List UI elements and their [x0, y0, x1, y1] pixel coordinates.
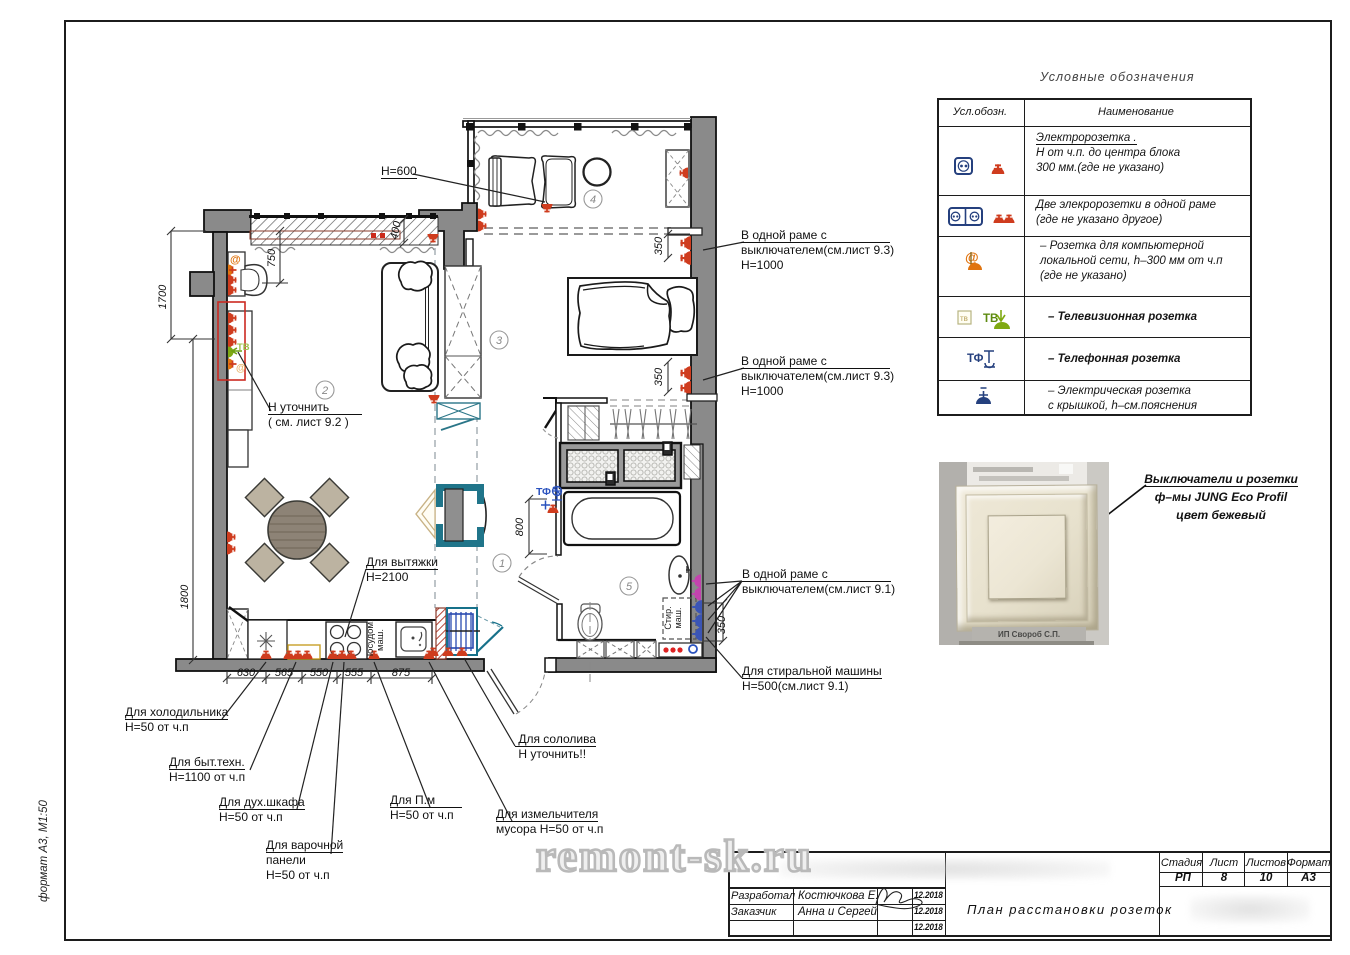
svg-text:Стир.: Стир. [663, 606, 673, 629]
svg-text:маш.: маш. [375, 629, 386, 651]
svg-text:5: 5 [626, 581, 633, 593]
svg-text:875: 875 [392, 667, 411, 679]
svg-text:2: 2 [321, 385, 328, 397]
svg-text:3: 3 [496, 335, 503, 347]
svg-text:400: 400 [388, 219, 404, 240]
svg-text:555: 555 [345, 667, 364, 679]
svg-text:550: 550 [310, 667, 329, 679]
svg-text:1: 1 [499, 558, 505, 570]
svg-text:800: 800 [514, 517, 526, 536]
svg-text:маш.: маш. [673, 608, 683, 629]
svg-text:1800: 1800 [179, 584, 191, 609]
svg-text:4: 4 [590, 194, 596, 206]
svg-text:350: 350 [653, 367, 665, 386]
svg-text:350: 350 [653, 236, 665, 255]
svg-text:ТФ: ТФ [536, 486, 551, 498]
svg-text:750: 750 [266, 248, 278, 267]
svg-text:630: 630 [237, 667, 256, 679]
svg-text:1700: 1700 [157, 284, 169, 309]
svg-text:@: @ [230, 254, 241, 266]
